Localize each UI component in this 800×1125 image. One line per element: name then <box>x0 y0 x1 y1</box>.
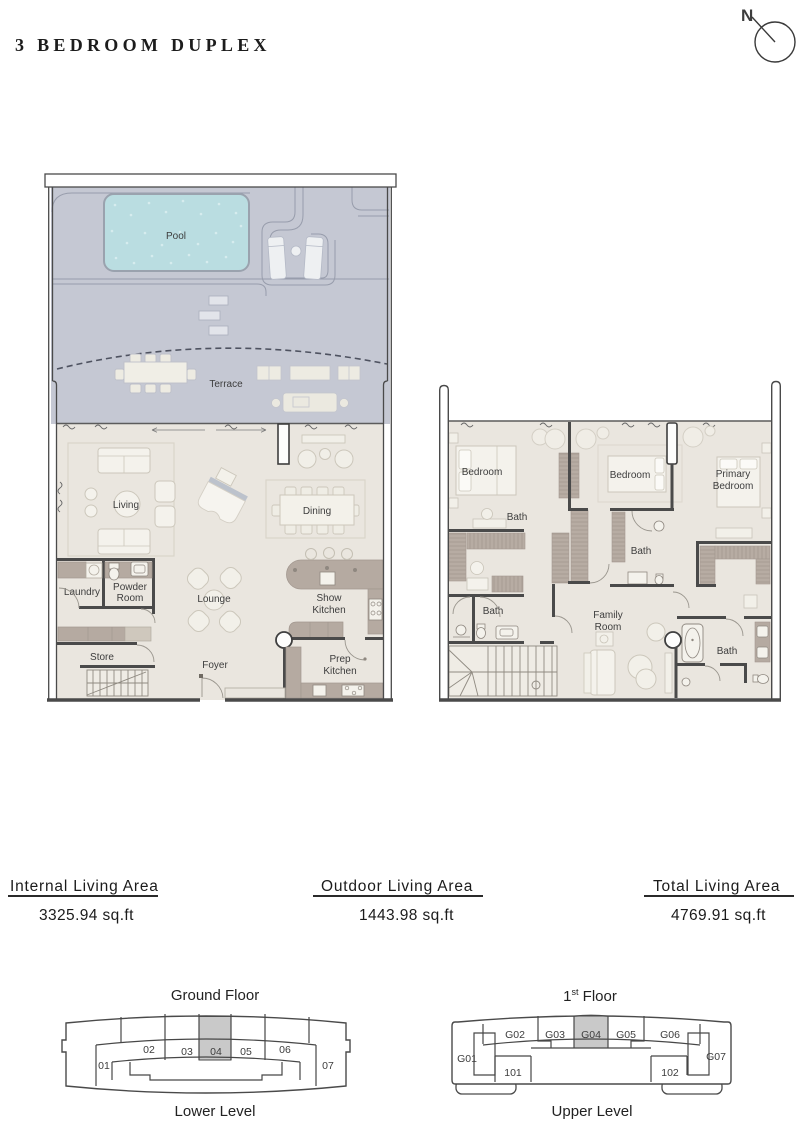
svg-text:06: 06 <box>279 1044 291 1056</box>
svg-text:Foyer: Foyer <box>202 660 228 671</box>
svg-text:Room: Room <box>595 622 622 633</box>
svg-text:05: 05 <box>240 1046 252 1058</box>
svg-text:Kitchen: Kitchen <box>312 605 345 616</box>
svg-text:G01: G01 <box>457 1053 477 1065</box>
svg-text:04: 04 <box>210 1046 222 1058</box>
svg-text:Bath: Bath <box>631 546 652 557</box>
svg-text:Pool: Pool <box>166 231 186 242</box>
svg-text:G05: G05 <box>616 1029 636 1041</box>
svg-text:Bath: Bath <box>717 646 738 657</box>
svg-text:Living: Living <box>113 500 139 511</box>
svg-text:Primary: Primary <box>716 469 750 480</box>
svg-text:Room: Room <box>117 593 144 604</box>
svg-text:07: 07 <box>322 1060 334 1072</box>
svg-text:Prep: Prep <box>329 654 351 665</box>
svg-text:Family: Family <box>593 610 622 621</box>
svg-text:N: N <box>741 6 753 25</box>
svg-text:Kitchen: Kitchen <box>323 666 356 677</box>
svg-text:102: 102 <box>661 1067 679 1079</box>
svg-text:Bedroom: Bedroom <box>610 470 651 481</box>
svg-text:Bedroom: Bedroom <box>462 467 503 478</box>
svg-text:G02: G02 <box>505 1029 525 1041</box>
svg-text:01: 01 <box>98 1060 110 1072</box>
svg-text:02: 02 <box>143 1044 155 1056</box>
svg-text:Bath: Bath <box>507 512 528 523</box>
svg-text:03: 03 <box>181 1046 193 1058</box>
svg-text:101: 101 <box>504 1067 522 1079</box>
svg-text:Show: Show <box>316 593 342 604</box>
svg-text:Laundry: Laundry <box>64 587 100 598</box>
svg-text:Store: Store <box>90 652 114 663</box>
svg-text:G06: G06 <box>660 1029 680 1041</box>
svg-text:G07: G07 <box>706 1051 726 1063</box>
svg-text:G04: G04 <box>581 1029 601 1041</box>
svg-text:Powder: Powder <box>113 582 148 593</box>
svg-text:Terrace: Terrace <box>209 379 243 390</box>
svg-text:Bedroom: Bedroom <box>713 481 754 492</box>
svg-text:G03: G03 <box>545 1029 565 1041</box>
svg-text:Dining: Dining <box>303 506 331 517</box>
svg-text:Lounge: Lounge <box>197 594 231 605</box>
